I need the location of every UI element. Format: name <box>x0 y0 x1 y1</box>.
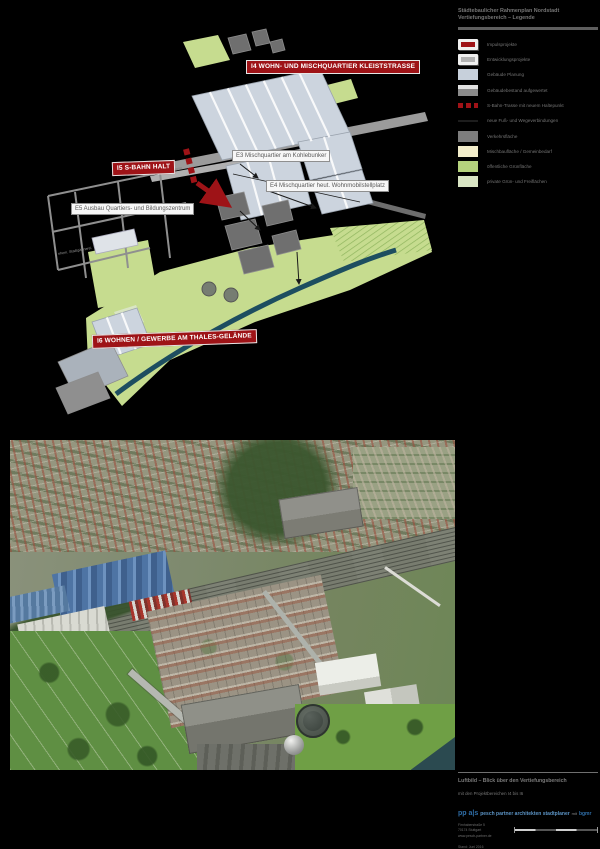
legend-row: Verkehrsfläche <box>458 128 598 143</box>
legend-item-label: öffentliche Grünfläche <box>487 164 532 169</box>
legend-title-line1: Städtebaulicher Rahmenplan Nordstadt <box>458 8 598 15</box>
callout-e3: E3 Mischquartier am Kohlebunker <box>232 150 330 162</box>
caption-divider <box>458 772 598 773</box>
legend-row: Impulsprojekte <box>458 37 598 52</box>
legend-item-label: Gebäudebestand aufgewertet <box>487 88 548 93</box>
logo-note: mit <box>572 811 577 816</box>
caption-block: Luftbild – Blick über den Vertiefungsber… <box>458 772 598 849</box>
logo-rest: pesch partner architekten stadtplaner <box>480 811 569 817</box>
office-logo: pp a|s pesch partner architekten stadtpl… <box>458 810 598 817</box>
photo-bridge <box>385 566 441 607</box>
aerial-photo <box>10 440 455 770</box>
scale-bar <box>514 827 598 833</box>
scale-bar-segments <box>515 829 597 831</box>
banner-i4: I4 WOHN- UND MISCHQUARTIER KLEISTSTRASSE <box>246 60 420 74</box>
existing-building-swatch <box>458 85 478 96</box>
photo-allotments <box>353 447 455 520</box>
legend-row: S-Bahn-Trasse mit neuem Haltepunkt <box>458 98 598 113</box>
logo-partner: bgmr <box>579 811 592 817</box>
legend-row: öffentliche Grünfläche <box>458 159 598 174</box>
legend-row: Gebäude Planung <box>458 67 598 82</box>
legend-row: Mischbaufläche / Gemeinbedarf <box>458 144 598 159</box>
date-line: Stand: Juni 2016 <box>458 845 598 849</box>
legend-title-line2: Vertiefungsbereich – Legende <box>458 15 598 22</box>
legend-item-label: S-Bahn-Trasse mit neuem Haltepunkt <box>487 103 564 108</box>
legend-item-label: Entwicklungsprojekte <box>487 57 530 62</box>
legend-item-label: private Grün- und Freiflächen <box>487 179 547 184</box>
logo-main: pp a|s <box>458 810 478 817</box>
red-banner-swatch <box>458 39 478 50</box>
office-address: Firnhaberstraße 5 70174 Stuttgart www.pe… <box>458 823 492 839</box>
legend-item-label: Gebäude Planung <box>487 72 524 77</box>
footer-columns: Firnhaberstraße 5 70174 Stuttgart www.pe… <box>458 823 598 839</box>
legend-item-label: neue Fuß- und Wegeverbindungen <box>487 118 558 123</box>
caption-title: Luftbild – Blick über den Vertiefungsber… <box>458 778 598 784</box>
callout-e5: E5 Ausbau Quartiers- und Bildungszentrum <box>71 203 194 215</box>
legend: Städtebaulicher Rahmenplan Nordstadt Ver… <box>458 8 598 190</box>
legend-row: Gebäudebestand aufgewertet <box>458 82 598 97</box>
legend-item-label: Impulsprojekte <box>487 42 517 47</box>
banner-i5: I5 S-BAHN HALT <box>112 160 176 176</box>
address-line-3: www.pesch-partner.de <box>458 834 492 839</box>
legend-item-label: Verkehrsfläche <box>487 134 517 139</box>
legend-item-label: Mischbaufläche / Gemeinbedarf <box>487 149 552 154</box>
callout-e4: E4 Mischquartier heut. Wohnmobilstellpla… <box>266 180 389 192</box>
planned-building-swatch <box>458 69 478 80</box>
legend-divider <box>458 27 598 30</box>
caption-subtitle: mit den Projektbereichen I4 bis I6 <box>458 791 598 796</box>
photo-silver-sphere <box>284 735 304 755</box>
photo-gasometer <box>296 704 330 738</box>
private-green-swatch <box>458 176 478 187</box>
legend-row: neue Fuß- und Wegeverbindungen <box>458 113 598 128</box>
white-banner-swatch <box>458 54 478 65</box>
legend-row: private Grün- und Freiflächen <box>458 174 598 189</box>
sbahn-line-swatch <box>458 103 478 108</box>
legend-title: Städtebaulicher Rahmenplan Nordstadt Ver… <box>458 8 598 23</box>
mixed-use-swatch <box>458 146 478 157</box>
public-green-swatch <box>458 161 478 172</box>
legend-row: Entwicklungsprojekte <box>458 52 598 67</box>
path-line-swatch <box>458 120 478 122</box>
traffic-area-swatch <box>458 131 478 142</box>
document-page: I4 WOHN- UND MISCHQUARTIER KLEISTSTRASSE… <box>0 0 600 849</box>
